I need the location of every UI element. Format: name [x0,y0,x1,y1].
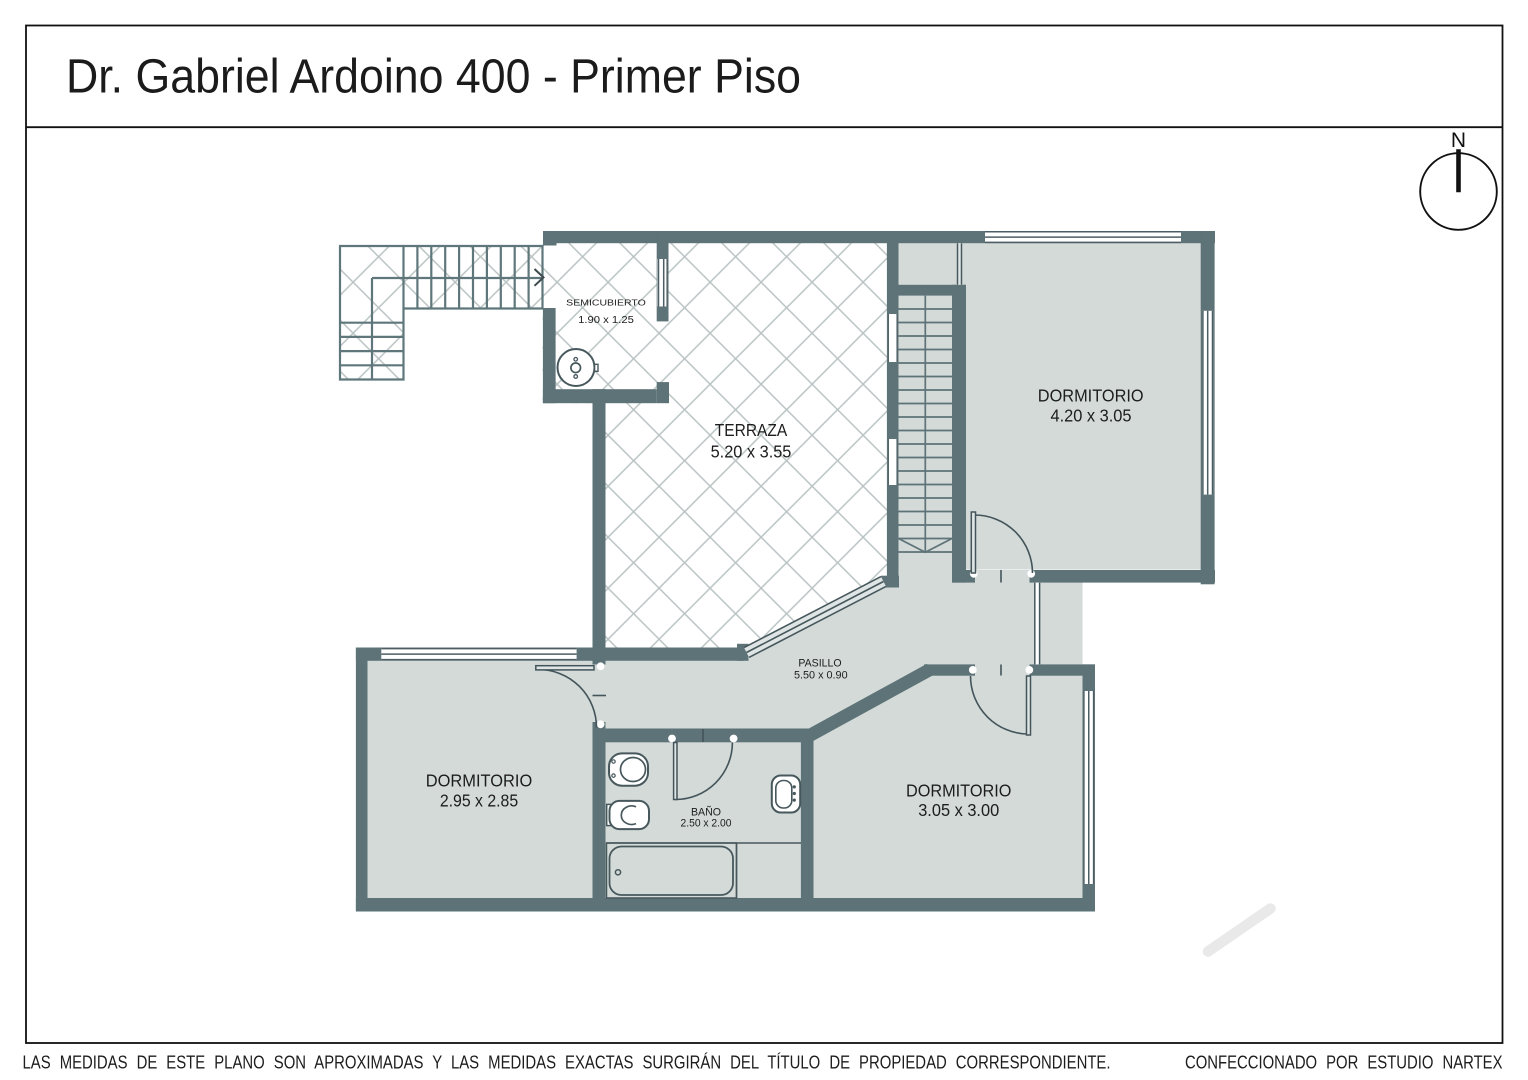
svg-text:4.20 x 3.05: 4.20 x 3.05 [1051,405,1132,425]
svg-text:PASILLO: PASILLO [798,658,841,670]
svg-text:Dr. Gabriel Ardoino 400 - Prim: Dr. Gabriel Ardoino 400 - Primer Piso [66,51,801,104]
svg-text:5.20 x 3.55: 5.20 x 3.55 [711,441,792,461]
svg-text:TERRAZA: TERRAZA [715,420,788,440]
svg-text:DORMITORIO: DORMITORIO [426,771,533,791]
svg-text:N: N [1451,129,1466,152]
svg-text:1.90 x 1.25: 1.90 x 1.25 [578,315,634,326]
svg-text:2.50 x 2.00: 2.50 x 2.00 [681,817,732,829]
svg-text:LAS MEDIDAS DE ESTE PLANO SON: LAS MEDIDAS DE ESTE PLANO SON APROXIMADA… [23,1053,1111,1073]
svg-text:3.05 x 3.00: 3.05 x 3.00 [918,800,999,820]
svg-text:CONFECCIONADO POR ESTUDIO NART: CONFECCIONADO POR ESTUDIO NARTEX [1185,1053,1503,1073]
svg-text:DORMITORIO: DORMITORIO [906,781,1012,801]
svg-text:2.95 x 2.85: 2.95 x 2.85 [440,791,518,811]
svg-text:DORMITORIO: DORMITORIO [1038,386,1144,406]
svg-text:SEMICUBIERTO: SEMICUBIERTO [566,298,646,308]
svg-text:5.50 x 0.90: 5.50 x 0.90 [794,669,848,681]
